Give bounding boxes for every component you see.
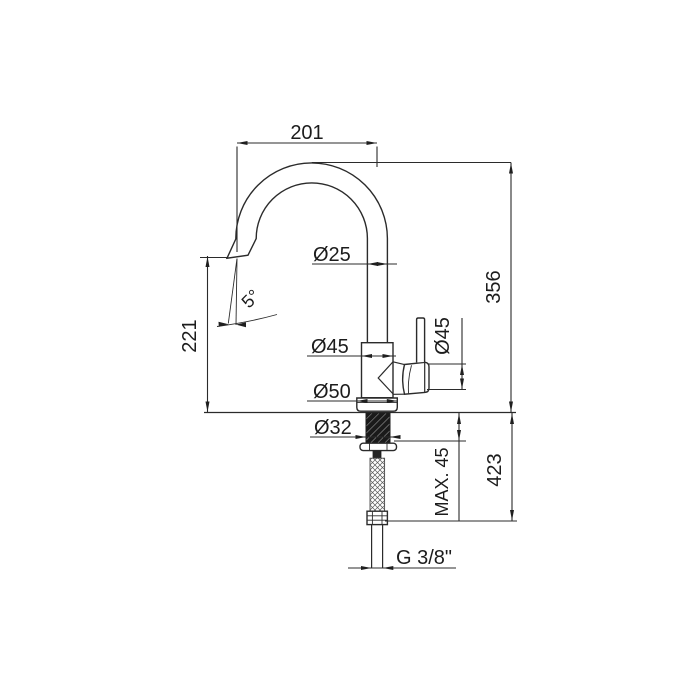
spout [227, 163, 387, 343]
dim-spout-reach-label: 201 [290, 122, 323, 144]
mounting-shank [366, 413, 390, 443]
dim-base-diameter-label: Ø50 [313, 381, 351, 403]
dim-outlet-height: 221 [179, 256, 227, 412]
dim-body-diameter-label: Ø45 [311, 336, 349, 358]
dim-height-above-deck: 356 [483, 163, 513, 413]
dim-handle-diameter-label: Ø45 [432, 317, 454, 355]
hose-collar [373, 451, 382, 459]
dim-height-above-deck-label: 356 [483, 270, 505, 303]
joint-top-line [393, 362, 405, 365]
dim-supply-thread: G 3/8" [348, 547, 456, 570]
dim-outlet-angle: 5° [217, 259, 277, 328]
dim-max-deck-thickness-label: MAX. 45 [432, 447, 452, 516]
supply-hose [370, 458, 385, 511]
dim-supply-thread-label: G 3/8" [396, 547, 452, 569]
handle-lever [417, 318, 425, 362]
faucet-dimension-diagram: 201 Ø25 221 5° Ø45 Ø50 [0, 0, 700, 700]
dim-spout-tube-label: Ø25 [313, 244, 351, 266]
dim-max-deck-thickness: MAX. 45 [394, 413, 466, 522]
dim-outlet-height-label: 221 [179, 319, 201, 352]
dim-outlet-angle-label: 5° [238, 286, 264, 312]
faucet-outline [204, 163, 516, 568]
technical-drawing-page: 201 Ø25 221 5° Ø45 Ø50 [0, 0, 700, 700]
dim-handle-diameter: Ø45 [427, 317, 466, 390]
mounting-nut [360, 443, 397, 450]
dim-below-deck-length-label: 423 [484, 453, 506, 486]
dim-shank-diameter-label: Ø32 [314, 417, 352, 439]
hose-fitting [367, 511, 387, 524]
